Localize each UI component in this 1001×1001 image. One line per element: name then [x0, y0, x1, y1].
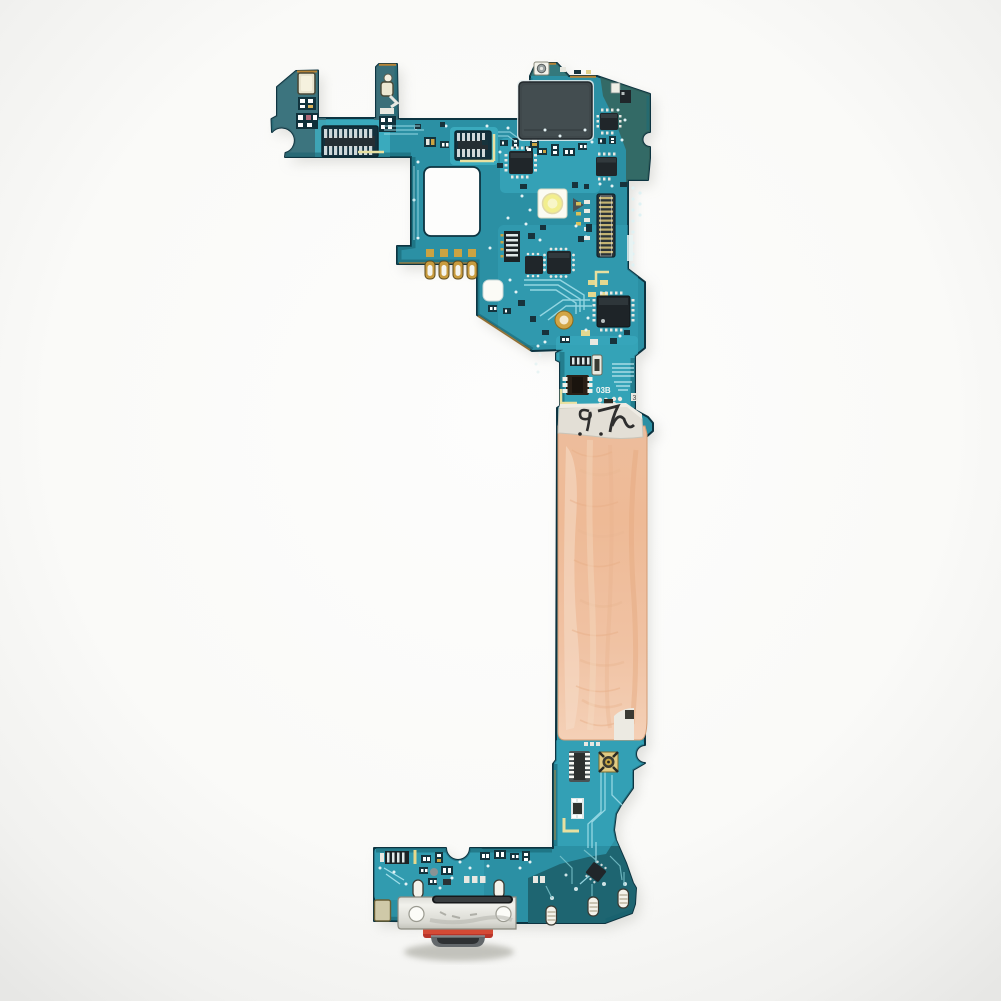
svg-text:03B: 03B: [596, 386, 611, 395]
svg-text:3: 3: [633, 395, 637, 402]
